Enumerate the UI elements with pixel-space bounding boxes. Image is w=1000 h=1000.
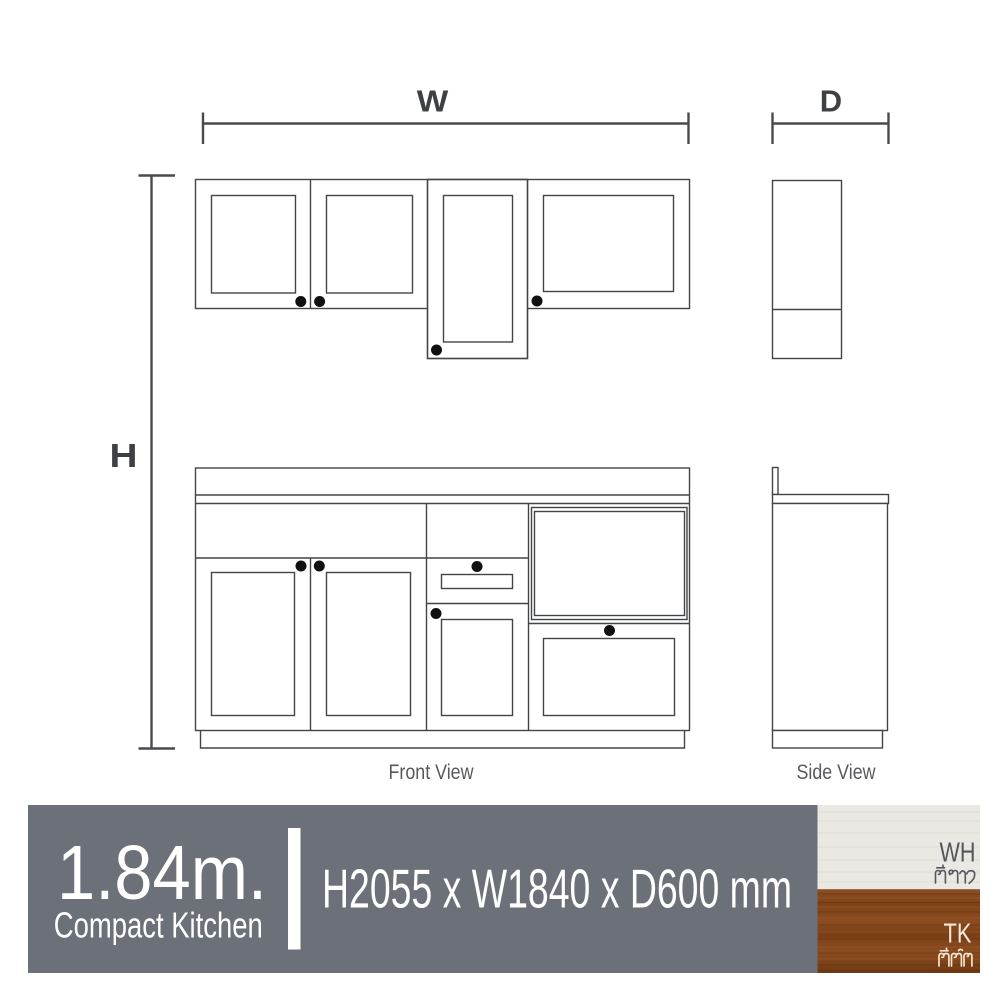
svg-text:Front View: Front View xyxy=(389,761,475,784)
svg-text:H: H xyxy=(110,437,138,474)
svg-text:Compact Kitchen: Compact Kitchen xyxy=(54,905,263,946)
svg-text:WH: WH xyxy=(940,837,976,868)
svg-text:D: D xyxy=(820,84,842,119)
svg-text:TK: TK xyxy=(944,918,972,949)
svg-text:Side View: Side View xyxy=(797,761,877,784)
svg-text:1.84m.: 1.84m. xyxy=(57,830,267,916)
svg-text:W: W xyxy=(417,84,449,119)
svg-text:H2055 x W1840 x D600 mm: H2055 x W1840 x D600 mm xyxy=(322,859,792,920)
